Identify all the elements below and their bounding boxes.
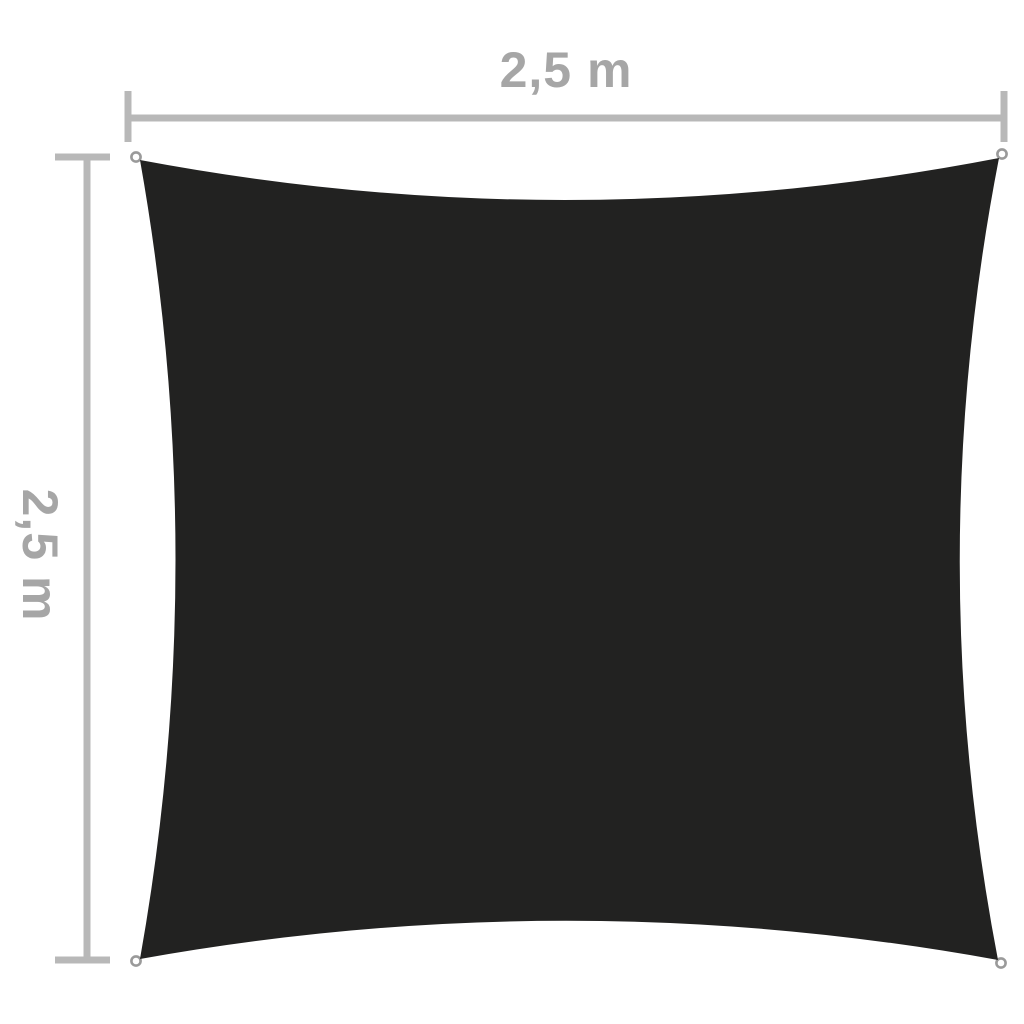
shade-sail-shape [140, 158, 999, 960]
grommet-ring-icon-top-left [131, 152, 140, 161]
diagram-canvas [0, 0, 1024, 1024]
grommet-ring-icon-bottom-left [131, 956, 140, 965]
grommet-ring-icon-top-right [997, 149, 1006, 158]
width-dimension-label: 2,5 m [128, 45, 1004, 95]
height-dimension-label: 2,5 m [15, 489, 65, 622]
product-dimension-diagram: 2,5 m 2,5 m [0, 0, 1024, 1024]
